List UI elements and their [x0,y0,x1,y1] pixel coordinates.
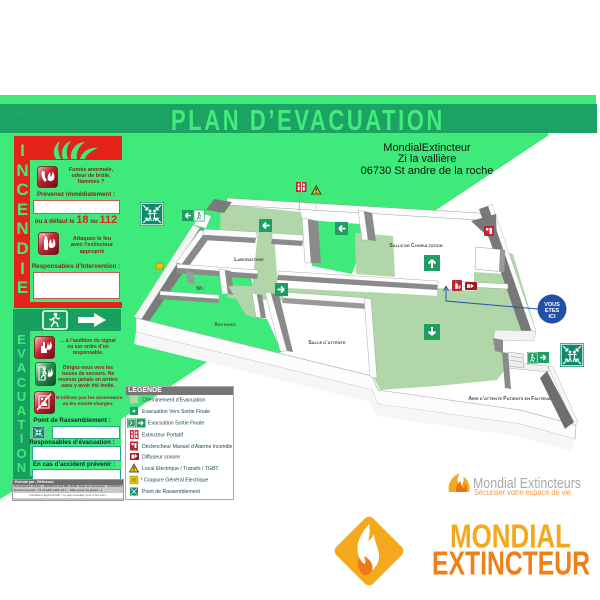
svg-text:Sécuriser votre espace de vie: Sécuriser votre espace de vie [474,488,572,497]
svg-text:EXTINCTEUR: EXTINCTEUR [432,545,590,582]
